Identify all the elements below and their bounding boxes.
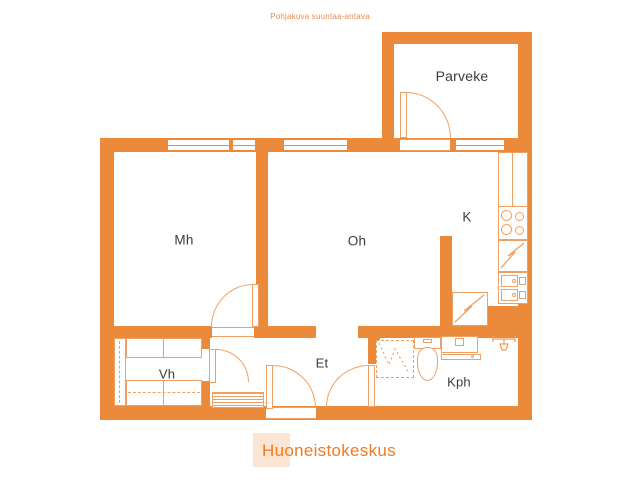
mh-door-arc: [211, 284, 253, 327]
balcony-wall-right: [518, 32, 532, 138]
refrigerator-icon: [498, 240, 528, 272]
cabinet-icon: [126, 338, 202, 358]
room-label-vh: Vh: [159, 367, 175, 382]
front-door-leaf: [266, 365, 273, 409]
balcony-door-arc: [406, 92, 451, 138]
cabinet-icon: [126, 380, 202, 406]
room-label-mh: Mh: [174, 233, 193, 248]
cabinet-divider: [163, 381, 164, 405]
balcony-wall-left: [382, 32, 394, 138]
sink-shelf: [441, 354, 481, 360]
threshold-front-door: [266, 407, 316, 419]
wall-kph-corner: [358, 326, 380, 338]
room-label-oh: Oh: [348, 234, 366, 249]
counter-divider: [512, 153, 513, 207]
window-kitchen: [455, 139, 505, 151]
wall-kitchen-stub: [440, 236, 452, 326]
mh-door-leaf: [252, 284, 259, 327]
doormat-icon: [212, 392, 264, 408]
burner-icon: [501, 210, 512, 221]
kph-door-arc: [326, 365, 369, 407]
window-mh-small: [232, 139, 256, 151]
window-mh-large: [167, 139, 230, 151]
cabinet-dash-line: [128, 392, 200, 393]
burner-icon: [515, 212, 524, 221]
wall-vh-et-upper: [202, 338, 210, 349]
wardrobe-rail: [119, 341, 120, 403]
threshold-balcony-door: [400, 139, 450, 151]
logo-text: Huoneistokeskus: [262, 441, 396, 461]
burner-icon: [515, 226, 524, 235]
threshold-mh-door: [212, 327, 254, 337]
tap-icon: [519, 291, 526, 299]
balcony-door-leaf: [400, 92, 407, 138]
duct-block: [486, 306, 518, 328]
room-label-et: Et: [316, 356, 329, 371]
drain-icon: [512, 279, 516, 283]
tap-icon: [519, 277, 526, 285]
room-label-parveke: Parveke: [436, 68, 489, 84]
toilet-icon: [417, 347, 438, 381]
wall-vh-top: [100, 326, 212, 338]
room-label-k: K: [462, 210, 471, 225]
wall-et-center: [254, 326, 316, 338]
plan-caption: Pohjakuva suuntaa-antava: [0, 12, 640, 21]
drain-icon: [512, 293, 516, 297]
window-oh: [283, 139, 348, 151]
room-label-kph: Kph: [447, 375, 471, 390]
wall-vh-et-lower: [202, 381, 210, 406]
outer-wall-bottom: [100, 406, 532, 420]
drain-icon: [471, 355, 474, 358]
outer-wall-left: [100, 138, 114, 420]
vh-door-leaf: [209, 349, 216, 383]
vh-door-arc: [216, 349, 249, 382]
burner-icon: [501, 224, 512, 235]
toilet-handle: [423, 339, 432, 343]
cabinet-divider: [163, 339, 164, 357]
balcony-wall-top: [382, 32, 532, 44]
wardrobe-icon: [114, 338, 126, 406]
faucet-icon: [455, 338, 464, 346]
washer-tap-icon: [490, 334, 518, 354]
floor-plan: Pohjakuva suuntaa-antava: [0, 0, 640, 480]
shower-icon: [376, 340, 414, 378]
kph-door-leaf: [368, 365, 375, 407]
front-door-arc: [273, 365, 316, 408]
appliance-icon: [452, 292, 488, 326]
